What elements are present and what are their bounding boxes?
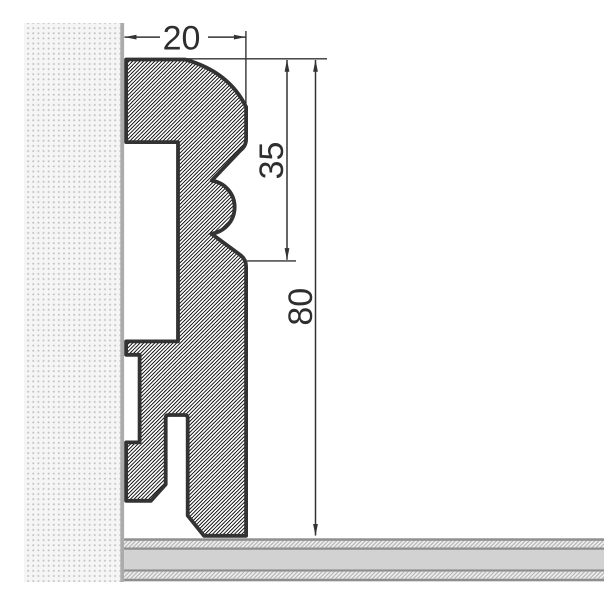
svg-text:20: 20 xyxy=(163,20,201,58)
svg-text:80: 80 xyxy=(282,288,320,326)
svg-text:35: 35 xyxy=(253,142,291,180)
